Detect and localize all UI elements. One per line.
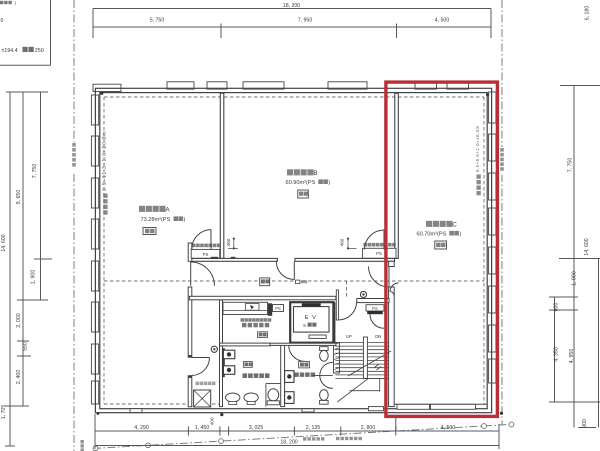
svg-text:14, 600: 14, 600 [1, 234, 7, 251]
svg-text:4, 950: 4, 950 [569, 349, 575, 364]
svg-text:8.5+11.3+1.0=20.8m: 8.5+11.3+1.0=20.8m [102, 131, 108, 191]
svg-text:UP: UP [346, 334, 352, 339]
svg-text:2, 400: 2, 400 [16, 370, 22, 385]
svg-text:7, 750: 7, 750 [32, 164, 38, 179]
svg-text:73.28m²(PS: 73.28m²(PS [141, 217, 171, 223]
svg-text:1, 900: 1, 900 [572, 271, 578, 286]
svg-text:900: 900 [582, 419, 588, 428]
svg-text:18, 200: 18, 200 [280, 440, 297, 446]
svg-text:B: B [313, 170, 317, 177]
svg-text:460: 460 [226, 238, 231, 246]
svg-text:4, 290: 4, 290 [134, 425, 149, 431]
svg-text:550: 550 [23, 342, 29, 351]
svg-text:7, 950: 7, 950 [298, 18, 313, 24]
svg-text:5, 750: 5, 750 [150, 18, 165, 24]
svg-text:7, 750: 7, 750 [568, 158, 574, 173]
svg-text:E V: E V [305, 315, 317, 321]
svg-text:60.90m²(PS: 60.90m²(PS [286, 180, 316, 186]
svg-text:): ) [459, 232, 461, 238]
svg-text:8.5+6.5+1.0=16.0m: 8.5+6.5+1.0=16.0m [475, 125, 480, 172]
svg-text:4, 350: 4, 350 [554, 347, 560, 362]
svg-text:): ) [184, 217, 186, 223]
svg-text:3, 025: 3, 025 [249, 425, 264, 431]
svg-text:250: 250 [35, 48, 44, 54]
svg-text:±194.4: ±194.4 [2, 48, 18, 54]
svg-text:460: 460 [340, 238, 345, 246]
svg-text:2, 135: 2, 135 [306, 425, 321, 431]
svg-text:1, 450: 1, 450 [195, 425, 210, 431]
svg-text:PS: PS [203, 252, 209, 257]
svg-text:6, 180: 6, 180 [585, 6, 591, 21]
svg-text:2, 800: 2, 800 [361, 425, 376, 431]
svg-text:1, 900: 1, 900 [31, 270, 37, 285]
svg-text:14, 600: 14, 600 [584, 238, 590, 255]
svg-text:C: C [452, 222, 457, 229]
svg-text:0: 0 [1, 18, 4, 24]
svg-text:60.70m²(PS: 60.70m²(PS [417, 232, 447, 238]
svg-text:600: 600 [554, 303, 560, 312]
svg-text:PS: PS [376, 251, 382, 256]
svg-text:1, 705: 1, 705 [1, 405, 7, 420]
svg-text:9, 650: 9, 650 [16, 190, 22, 205]
svg-text:PS: PS [372, 306, 378, 311]
svg-text:2, 000: 2, 000 [16, 313, 22, 328]
svg-text:400: 400 [210, 417, 216, 425]
svg-text:18, 200: 18, 200 [283, 3, 300, 9]
svg-text:DN: DN [375, 334, 381, 339]
svg-text:PS: PS [275, 306, 281, 311]
svg-text:4, 500: 4, 500 [441, 425, 456, 431]
svg-text:4, 500: 4, 500 [435, 18, 450, 24]
svg-text:): ) [328, 180, 330, 186]
